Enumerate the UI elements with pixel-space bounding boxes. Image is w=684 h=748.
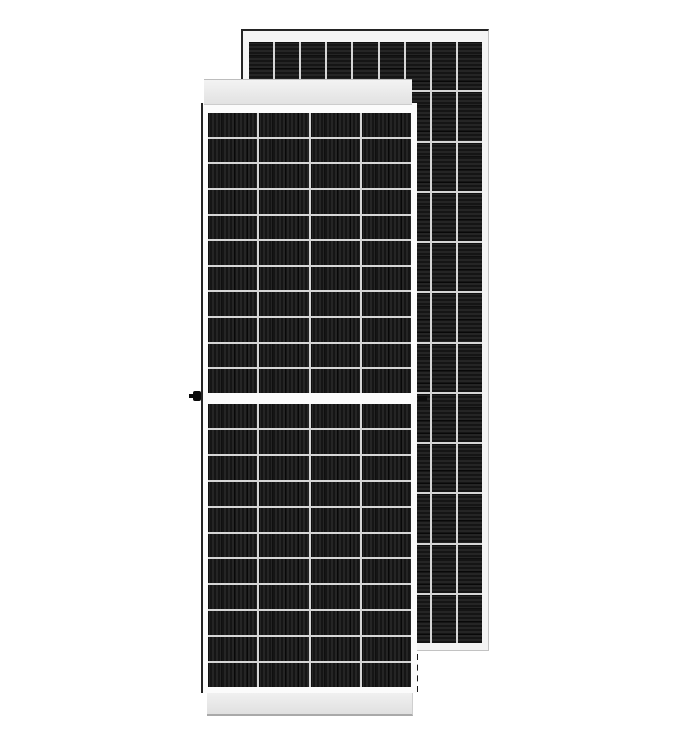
solar-cell (458, 42, 482, 90)
solar-cell (208, 318, 257, 342)
solar-cell (259, 164, 308, 188)
solar-cell (458, 344, 482, 392)
solar-cell (311, 216, 360, 240)
solar-cell (311, 318, 360, 342)
solar-cell (362, 113, 411, 137)
solar-cell (259, 139, 308, 163)
solar-cell (458, 293, 482, 341)
solar-cell (311, 113, 360, 137)
solar-cell (259, 113, 308, 137)
solar-cell (362, 611, 411, 635)
solar-cell (208, 267, 257, 291)
solar-cell (311, 508, 360, 532)
front-panel-cell-grid-upper (208, 113, 411, 393)
solar-cell (432, 595, 456, 643)
grounding-connector-left (193, 391, 201, 401)
solar-panels-product-image (0, 0, 684, 748)
solar-cell (208, 404, 257, 428)
solar-cell (259, 267, 308, 291)
solar-cell (432, 344, 456, 392)
solar-cell (259, 318, 308, 342)
solar-cell (362, 344, 411, 368)
solar-cell (208, 534, 257, 558)
solar-cell (311, 292, 360, 316)
solar-cell (311, 139, 360, 163)
solar-cell (432, 42, 456, 90)
solar-cell (311, 611, 360, 635)
solar-cell (362, 585, 411, 609)
solar-cell (362, 318, 411, 342)
solar-cell (362, 216, 411, 240)
solar-cell (259, 663, 308, 687)
solar-cell (362, 267, 411, 291)
solar-cell (311, 164, 360, 188)
solar-cell (311, 559, 360, 583)
solar-cell (259, 508, 308, 532)
solar-cell (208, 292, 257, 316)
solar-cell (311, 344, 360, 368)
solar-cell (259, 430, 308, 454)
front-panel-frame-bottom-edge (207, 693, 413, 716)
solar-cell (458, 494, 482, 542)
front-solar-panel (201, 103, 417, 693)
solar-cell (362, 663, 411, 687)
solar-cell (362, 190, 411, 214)
solar-cell (259, 482, 308, 506)
solar-cell (311, 637, 360, 661)
solar-cell (311, 534, 360, 558)
solar-cell (208, 164, 257, 188)
solar-cell (311, 190, 360, 214)
grounding-connector-right (418, 396, 427, 401)
solar-cell (208, 663, 257, 687)
solar-cell (311, 456, 360, 480)
solar-cell (208, 139, 257, 163)
solar-cell (259, 585, 308, 609)
solar-cell (311, 585, 360, 609)
solar-cell (311, 482, 360, 506)
solar-cell (432, 394, 456, 442)
solar-cell (259, 611, 308, 635)
solar-cell (208, 113, 257, 137)
solar-cell (311, 369, 360, 393)
solar-cell (311, 404, 360, 428)
solar-cell (458, 92, 482, 140)
solar-cell (208, 559, 257, 583)
solar-cell (259, 404, 308, 428)
solar-cell (259, 534, 308, 558)
solar-cell (208, 369, 257, 393)
solar-cell (208, 216, 257, 240)
solar-cell (208, 637, 257, 661)
solar-cell (362, 241, 411, 265)
solar-cell (259, 241, 308, 265)
solar-cell (311, 241, 360, 265)
solar-cell (208, 241, 257, 265)
solar-cell (458, 545, 482, 593)
solar-cell (362, 559, 411, 583)
solar-cell (458, 243, 482, 291)
front-panel-frame-top-edge (204, 79, 412, 105)
solar-cell (208, 456, 257, 480)
solar-cell (208, 508, 257, 532)
solar-cell (432, 193, 456, 241)
solar-cell (432, 545, 456, 593)
solar-cell (432, 143, 456, 191)
solar-cell (362, 482, 411, 506)
solar-cell (208, 585, 257, 609)
solar-cell (311, 663, 360, 687)
solar-cell (259, 344, 308, 368)
solar-cell (362, 292, 411, 316)
solar-cell (432, 494, 456, 542)
solar-cell (259, 456, 308, 480)
solar-cell (259, 292, 308, 316)
solar-cell (259, 369, 308, 393)
solar-cell (458, 595, 482, 643)
solar-cell (208, 611, 257, 635)
solar-cell (362, 164, 411, 188)
solar-cell (208, 430, 257, 454)
solar-cell (208, 190, 257, 214)
solar-cell (458, 193, 482, 241)
solar-cell (259, 190, 308, 214)
solar-cell (362, 404, 411, 428)
solar-cell (458, 143, 482, 191)
solar-cell (458, 394, 482, 442)
solar-cell (259, 216, 308, 240)
solar-cell (432, 444, 456, 492)
solar-cell (311, 267, 360, 291)
solar-cell (362, 637, 411, 661)
front-panel-cell-grid-lower (208, 404, 411, 687)
solar-cell (259, 559, 308, 583)
solar-cell (362, 139, 411, 163)
solar-cell (432, 243, 456, 291)
solar-cell (458, 444, 482, 492)
solar-cell (259, 637, 308, 661)
solar-cell (208, 344, 257, 368)
solar-cell (208, 482, 257, 506)
solar-cell (311, 430, 360, 454)
solar-cell (432, 92, 456, 140)
solar-cell (362, 430, 411, 454)
solar-cell (432, 293, 456, 341)
solar-cell (362, 534, 411, 558)
solar-cell (362, 456, 411, 480)
solar-cell (362, 369, 411, 393)
solar-cell (362, 508, 411, 532)
